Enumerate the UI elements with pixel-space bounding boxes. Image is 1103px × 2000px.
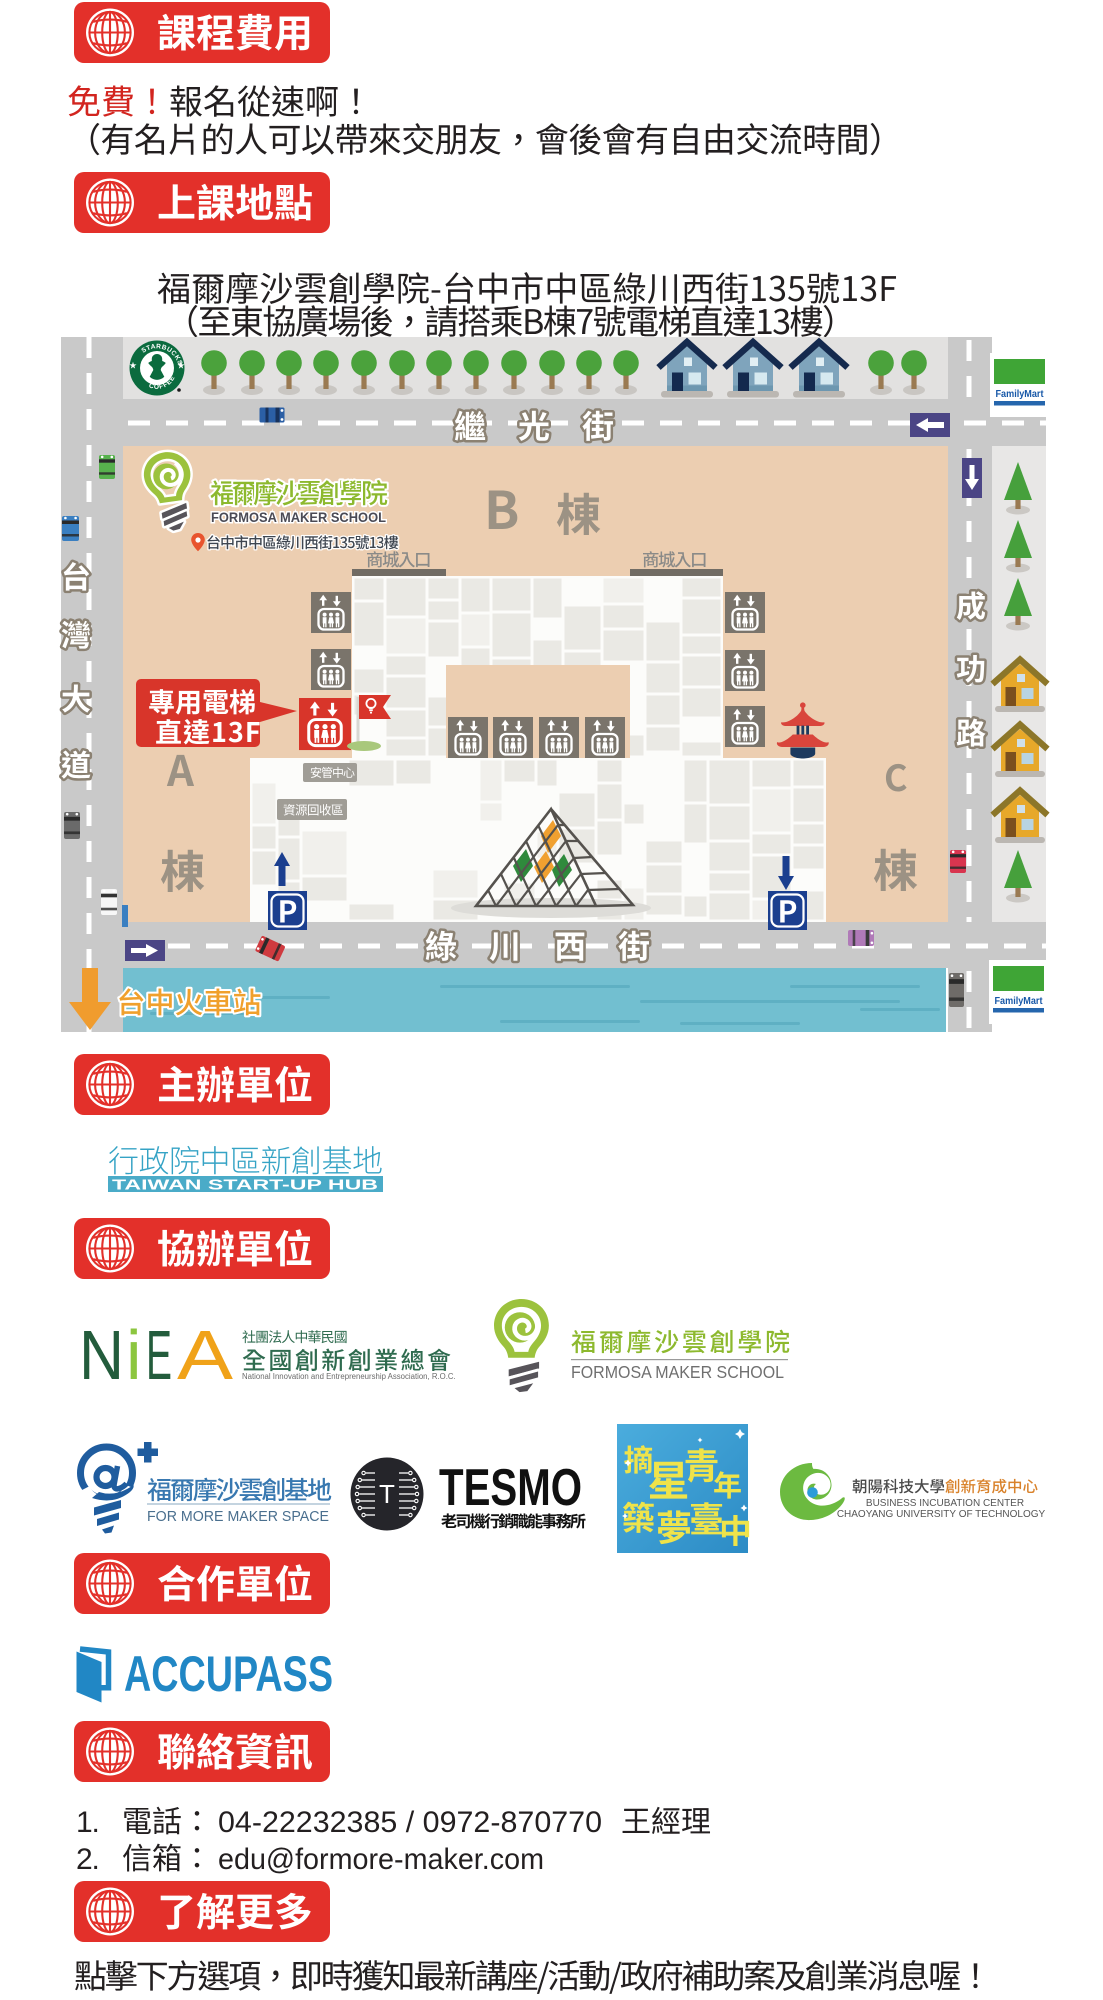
svg-text:N: N (79, 1316, 124, 1394)
svg-text:1.: 1. (76, 1806, 99, 1839)
svg-text:edu@formore-maker.com: edu@formore-maker.com (218, 1843, 544, 1876)
svg-text:FOR MORE MAKER SPACE: FOR MORE MAKER SPACE (147, 1508, 329, 1525)
svg-text:04-22232385 / 0972-870770: 04-22232385 / 0972-870770 (218, 1806, 602, 1839)
svg-text:i: i (126, 1316, 142, 1394)
svg-text:FORMOSA MAKER SCHOOL: FORMOSA MAKER SCHOOL (571, 1362, 784, 1382)
svg-text:BUSINESS INCUBATION CENTER: BUSINESS INCUBATION CENTER (866, 1498, 1024, 1509)
svg-text:CHAOYANG UNIVERSITY OF TECHNOL: CHAOYANG UNIVERSITY OF TECHNOLOGY (837, 1509, 1046, 1520)
svg-text:2.: 2. (76, 1843, 99, 1876)
svg-text:National Innovation and Entrep: National Innovation and Entrepreneurship… (242, 1372, 456, 1381)
svg-text:TAIWAN START-UP HUB: TAIWAN START-UP HUB (112, 1177, 378, 1194)
svg-text:ACCUPASS: ACCUPASS (124, 1646, 333, 1702)
svg-text:A: A (177, 1316, 233, 1394)
svg-text:TESMO: TESMO (439, 1459, 582, 1517)
svg-text:E: E (146, 1316, 172, 1394)
svg-text:T: T (379, 1479, 395, 1509)
svg-text:FORMOSA MAKER SCHOOL: FORMOSA MAKER SCHOOL (211, 509, 386, 525)
